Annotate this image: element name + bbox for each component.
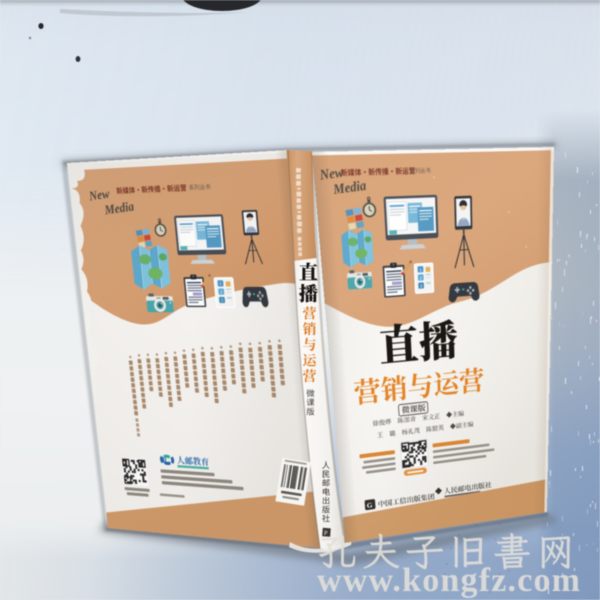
svg-text:www.kongfz.com: www.kongfz.com (317, 562, 580, 599)
